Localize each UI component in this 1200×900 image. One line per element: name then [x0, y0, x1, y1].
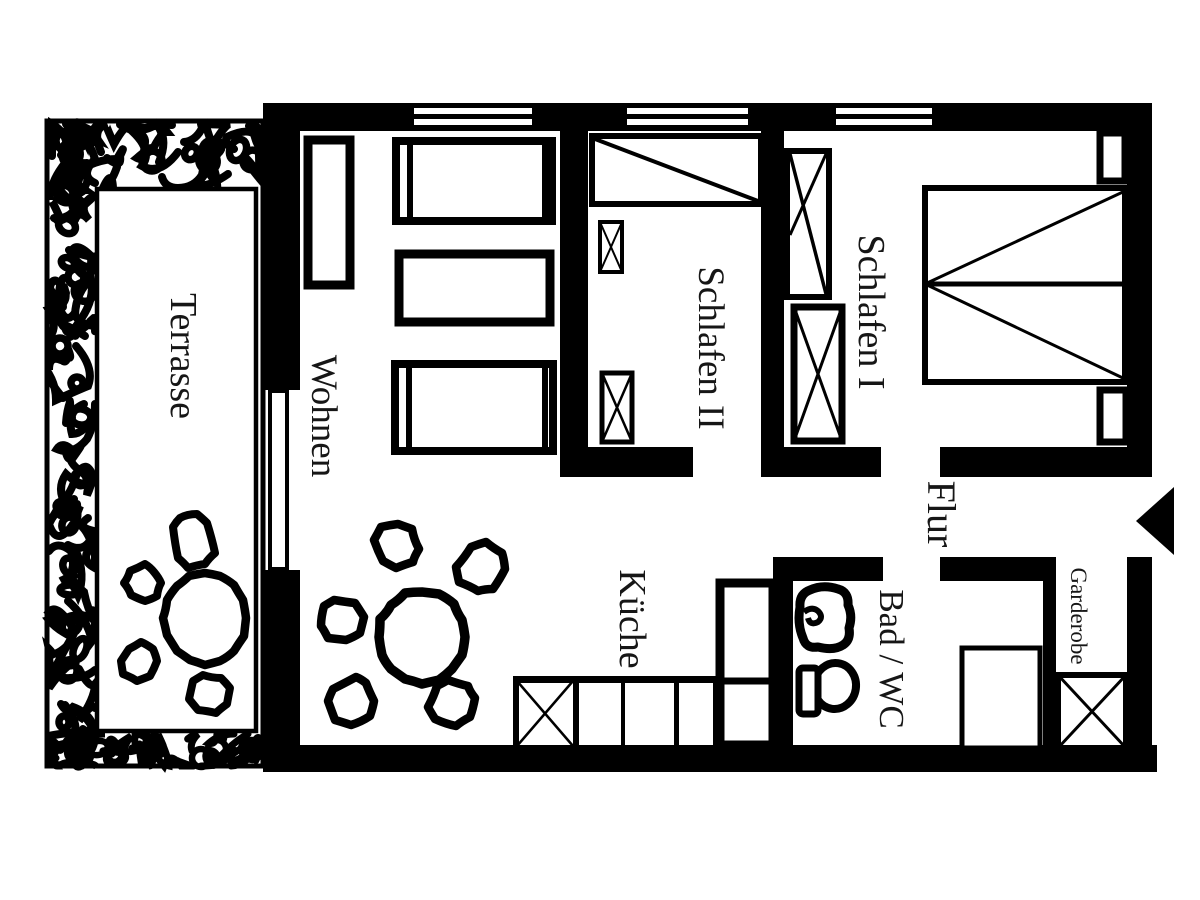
svg-text:Schlafen II: Schlafen II	[690, 266, 731, 429]
svg-text:Küche: Küche	[611, 569, 653, 668]
svg-text:Flur: Flur	[919, 481, 964, 548]
svg-text:Terrasse: Terrasse	[162, 293, 204, 419]
svg-text:Garderobe: Garderobe	[1066, 567, 1091, 664]
svg-text:Bad / WC: Bad / WC	[872, 589, 911, 728]
svg-text:Schlafen I: Schlafen I	[850, 234, 892, 389]
svg-text:Wohnen: Wohnen	[303, 355, 344, 477]
